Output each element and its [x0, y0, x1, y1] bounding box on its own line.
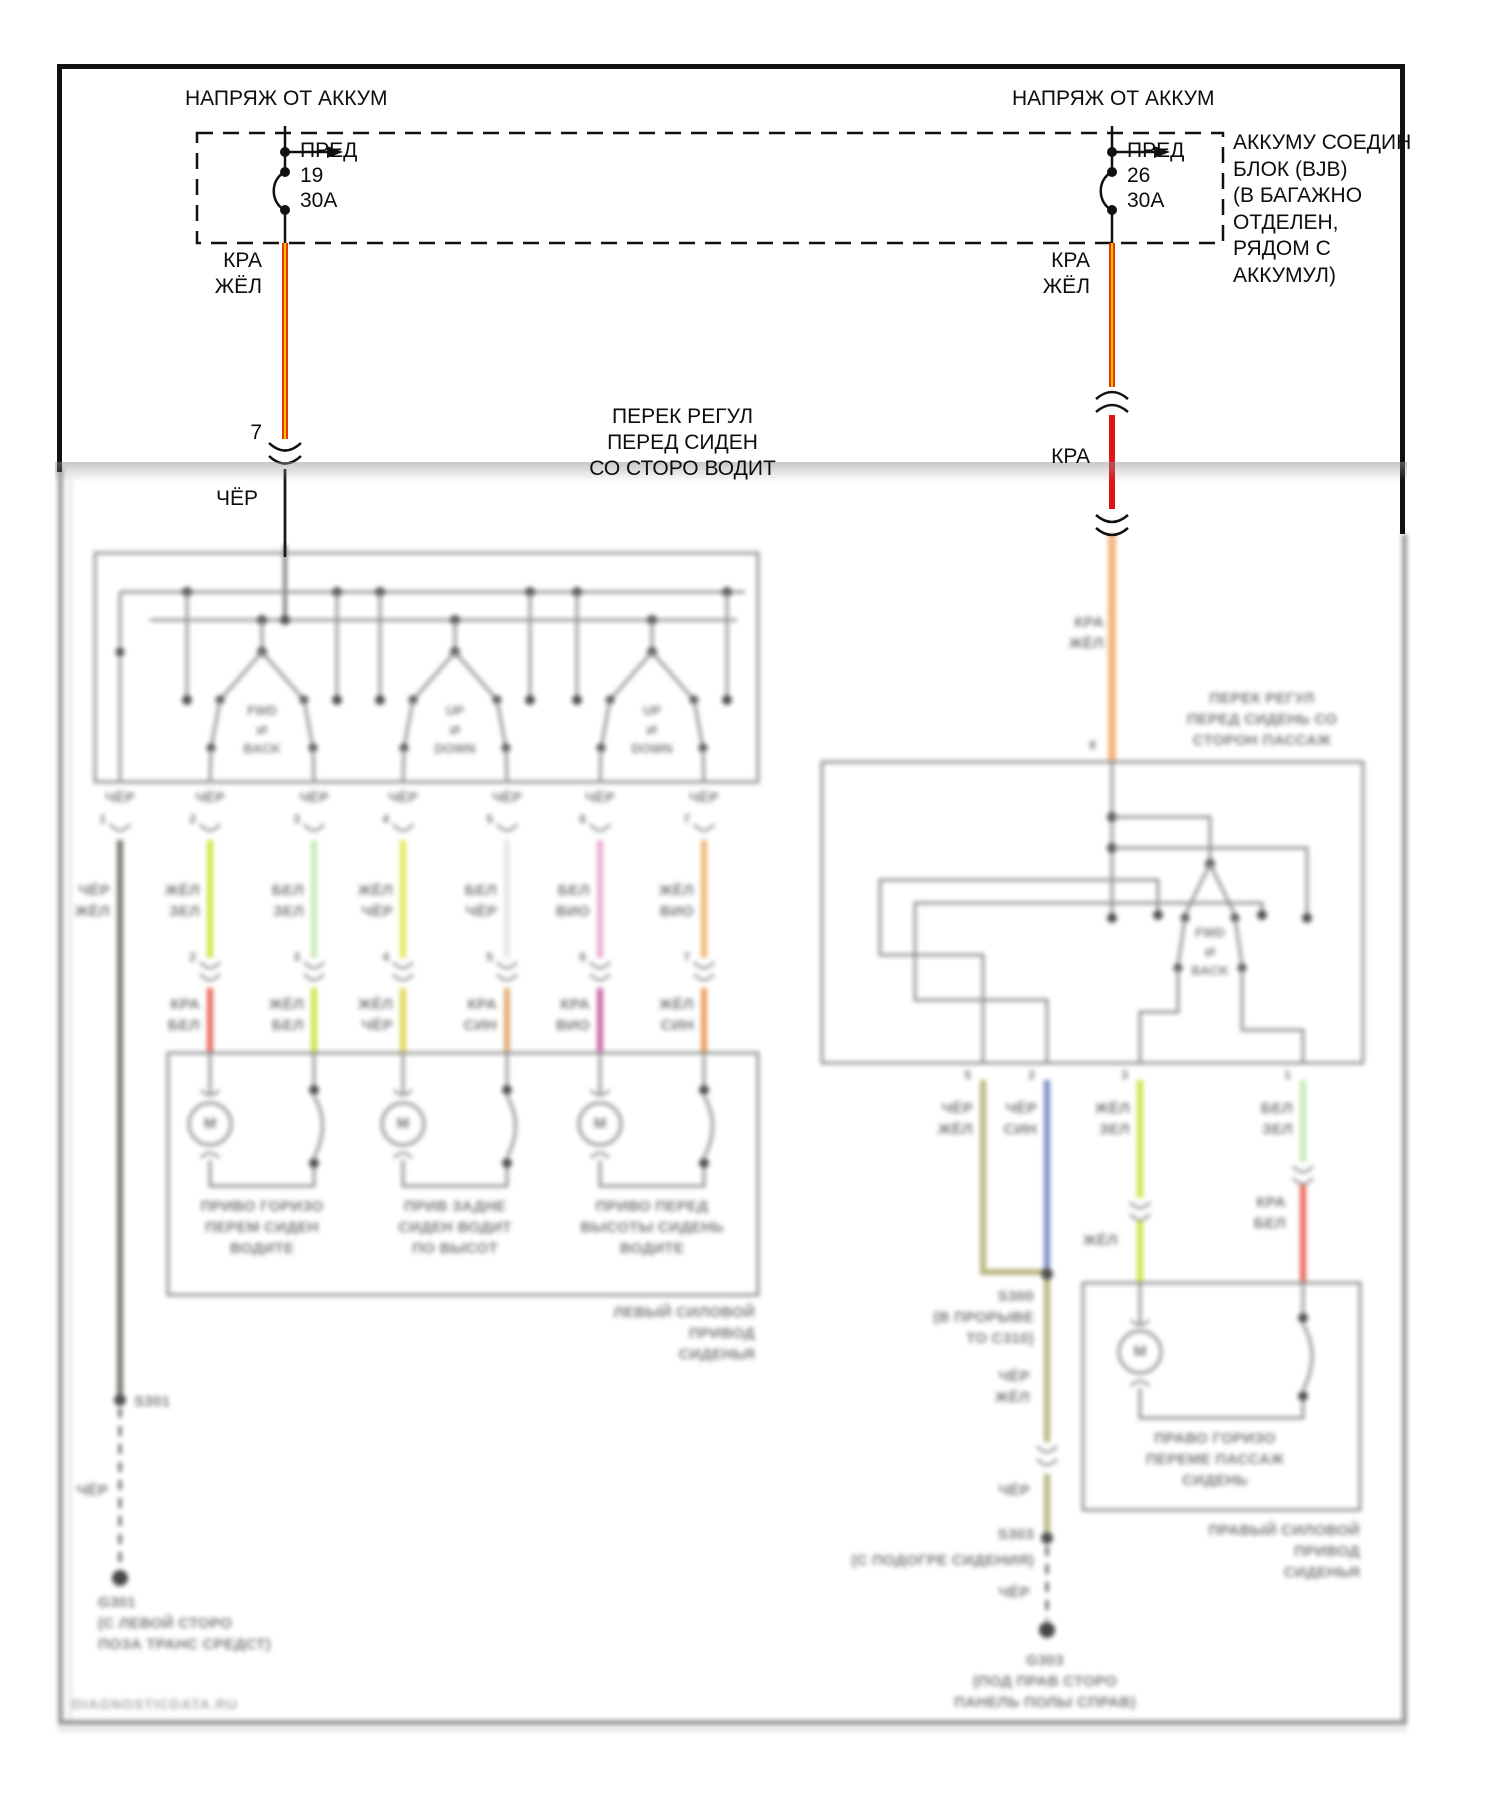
connector-7-pin: 7	[214, 420, 262, 446]
fuse-26-label: ПРЕД2630А	[1127, 138, 1184, 213]
connector-7-icon	[269, 443, 301, 464]
driver-black-wire	[284, 469, 287, 557]
driver-switch-title: ПЕРЕК РЕГУЛПЕРЕД СИДЕНСО СТОРО ВОДИТ	[580, 404, 785, 482]
driver-black-wire-label: ЧЁР	[150, 486, 258, 512]
inline-connector-icon	[1096, 515, 1128, 535]
inline-connector-icon	[1096, 392, 1128, 412]
right-feed-title: НАПРЯЖ ОТ АККУМ	[1012, 86, 1212, 112]
left-feed-wire-red-yellow	[282, 243, 288, 439]
right-red-wire-label: КРА	[990, 444, 1090, 470]
left-feed-title: НАПРЯЖ ОТ АККУМ	[185, 86, 385, 112]
left-wire-color-label: КРАЖЁЛ	[140, 248, 262, 300]
bjb-note: АККУМУ СОЕДИНБЛОК (BJB)(В БАГАЖНО ОТДЕЛЕ…	[1233, 130, 1411, 289]
fuse-19-label: ПРЕД1930А	[300, 138, 357, 213]
wiring-diagram-page: FWD⇄BACK UP⇄DOWN UP⇄DOWN ЧЁР ЧЁР ЧЁР ЧЁР…	[0, 0, 1500, 1814]
right-feed-wire-red-yellow	[1109, 243, 1115, 387]
right-wire-color-label: КРАЖЁЛ	[968, 248, 1090, 300]
